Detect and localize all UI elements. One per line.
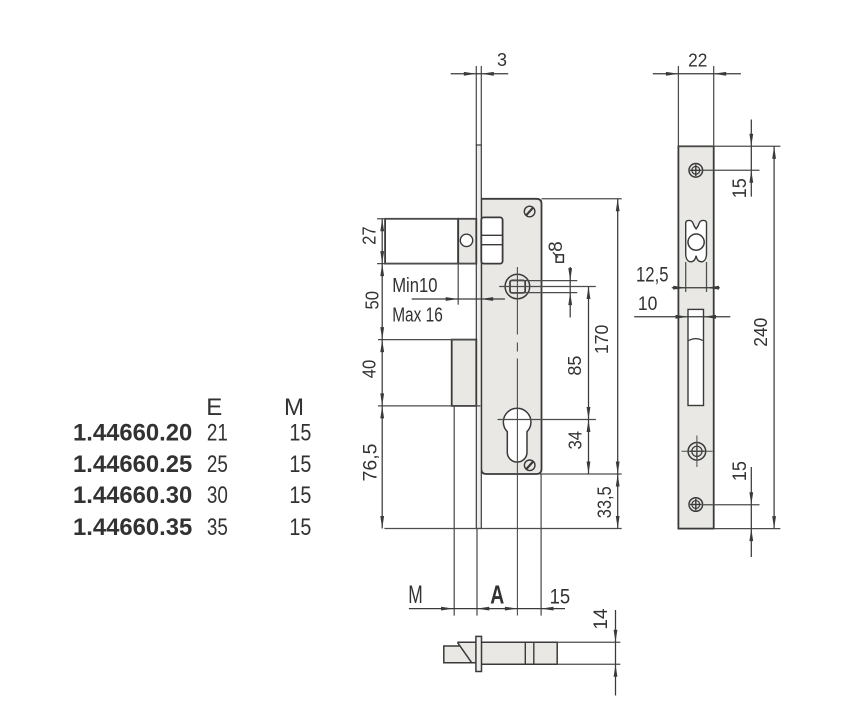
svg-text:1.44660.20: 1.44660.20	[73, 420, 192, 447]
svg-text:8: 8	[546, 241, 567, 252]
svg-text:15: 15	[289, 451, 311, 478]
svg-text:76,5: 76,5	[360, 443, 382, 481]
svg-text:M: M	[408, 581, 423, 609]
svg-text:Min10: Min10	[392, 274, 437, 297]
svg-text:50: 50	[362, 291, 382, 310]
svg-text:34: 34	[565, 431, 586, 450]
svg-text:15: 15	[289, 514, 311, 541]
svg-text:15: 15	[730, 178, 751, 198]
svg-text:33,5: 33,5	[594, 486, 616, 518]
svg-text:Max 16: Max 16	[392, 303, 443, 326]
svg-text:15: 15	[289, 420, 311, 447]
svg-text:1.44660.30: 1.44660.30	[73, 482, 192, 509]
svg-text:21: 21	[207, 420, 228, 447]
svg-text:27: 27	[360, 226, 380, 245]
svg-text:3: 3	[497, 50, 507, 70]
svg-text:240: 240	[750, 318, 771, 347]
svg-text:12,5: 12,5	[636, 263, 669, 286]
svg-text:1.44660.25: 1.44660.25	[73, 451, 192, 478]
svg-text:A: A	[490, 580, 504, 610]
svg-text:15: 15	[289, 482, 311, 509]
svg-text:22: 22	[688, 51, 707, 71]
svg-text:30: 30	[207, 482, 228, 509]
svg-text:85: 85	[564, 356, 585, 376]
svg-text:25: 25	[207, 451, 228, 478]
svg-text:15: 15	[730, 461, 751, 481]
svg-text:14: 14	[591, 608, 612, 630]
svg-text:E: E	[206, 394, 222, 421]
svg-text:M: M	[284, 394, 304, 421]
svg-text:35: 35	[207, 514, 228, 541]
svg-text:170: 170	[592, 325, 612, 355]
svg-text:1.44660.35: 1.44660.35	[73, 514, 192, 541]
svg-text:15: 15	[550, 586, 571, 609]
svg-text:10: 10	[638, 294, 658, 315]
svg-text:40: 40	[359, 360, 379, 379]
